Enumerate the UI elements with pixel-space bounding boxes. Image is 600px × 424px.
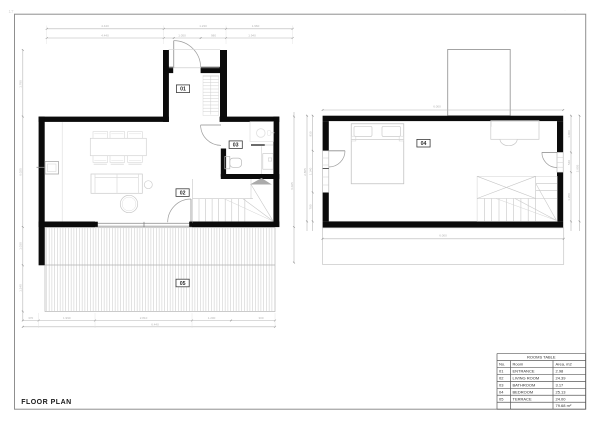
svg-text:05: 05 (180, 281, 186, 287)
svg-text:17: 17 (8, 9, 14, 14)
svg-text:05: 05 (499, 396, 504, 401)
svg-text:1.350: 1.350 (567, 193, 571, 201)
svg-text:1.940: 1.940 (248, 33, 256, 37)
svg-text:6.025: 6.025 (290, 182, 294, 190)
svg-text:79.68 m²: 79.68 m² (556, 403, 572, 408)
svg-text:1.030: 1.030 (19, 242, 23, 250)
svg-text:300: 300 (258, 316, 263, 320)
svg-text:24.00: 24.00 (556, 396, 567, 401)
svg-text:1.000: 1.000 (567, 130, 571, 138)
svg-text:1.140: 1.140 (309, 167, 313, 175)
svg-text:790: 790 (309, 204, 313, 209)
svg-text:980: 980 (211, 33, 216, 37)
svg-text:3.17: 3.17 (556, 382, 565, 387)
svg-text:Area, m2: Area, m2 (556, 362, 573, 367)
svg-text:TERRACE: TERRACE (513, 396, 532, 401)
svg-text:1.990: 1.990 (63, 316, 71, 320)
svg-text:2.98: 2.98 (556, 368, 565, 373)
svg-text:24.39: 24.39 (556, 375, 567, 380)
svg-text:02: 02 (180, 191, 186, 197)
svg-text:2.805: 2.805 (303, 168, 307, 176)
svg-text:01: 01 (499, 368, 504, 373)
svg-text:1.960: 1.960 (252, 24, 260, 28)
svg-text:BATHROOM: BATHROOM (513, 382, 536, 387)
svg-text:1.050: 1.050 (178, 33, 186, 37)
svg-text:04: 04 (499, 389, 504, 394)
svg-text:03: 03 (499, 382, 504, 387)
svg-text:4.440: 4.440 (101, 33, 109, 37)
svg-text:930: 930 (309, 131, 313, 136)
svg-text:540: 540 (567, 160, 571, 165)
svg-text:1.200: 1.200 (208, 316, 216, 320)
svg-text:BEDROOM: BEDROOM (513, 389, 534, 394)
svg-text:25.13: 25.13 (556, 389, 567, 394)
svg-text:No.: No. (499, 362, 505, 367)
svg-text:FLOOR PLAN: FLOOR PLAN (21, 399, 71, 406)
svg-text:6.000: 6.000 (439, 234, 447, 238)
svg-text:370: 370 (28, 316, 33, 320)
svg-text:ROOMS TABLE: ROOMS TABLE (527, 355, 556, 360)
svg-text:04: 04 (421, 141, 427, 147)
svg-text:2.810: 2.810 (140, 316, 148, 320)
svg-text:ENTRANCE: ENTRANCE (513, 368, 535, 373)
svg-text:1.240: 1.240 (19, 284, 23, 292)
svg-text:03: 03 (233, 143, 239, 149)
svg-text:1.230: 1.230 (199, 24, 207, 28)
svg-text:6.440: 6.440 (151, 323, 159, 327)
svg-text:02: 02 (499, 375, 504, 380)
svg-text:2.905: 2.905 (575, 164, 579, 172)
svg-text:Room: Room (513, 362, 524, 367)
svg-text:6.000: 6.000 (433, 105, 441, 109)
svg-text:LIVING ROOM: LIVING ROOM (513, 375, 540, 380)
svg-text:01: 01 (180, 87, 186, 93)
svg-text:1.780: 1.780 (19, 80, 23, 88)
svg-text:6.025: 6.025 (19, 168, 23, 176)
svg-text:4.440: 4.440 (101, 24, 109, 28)
